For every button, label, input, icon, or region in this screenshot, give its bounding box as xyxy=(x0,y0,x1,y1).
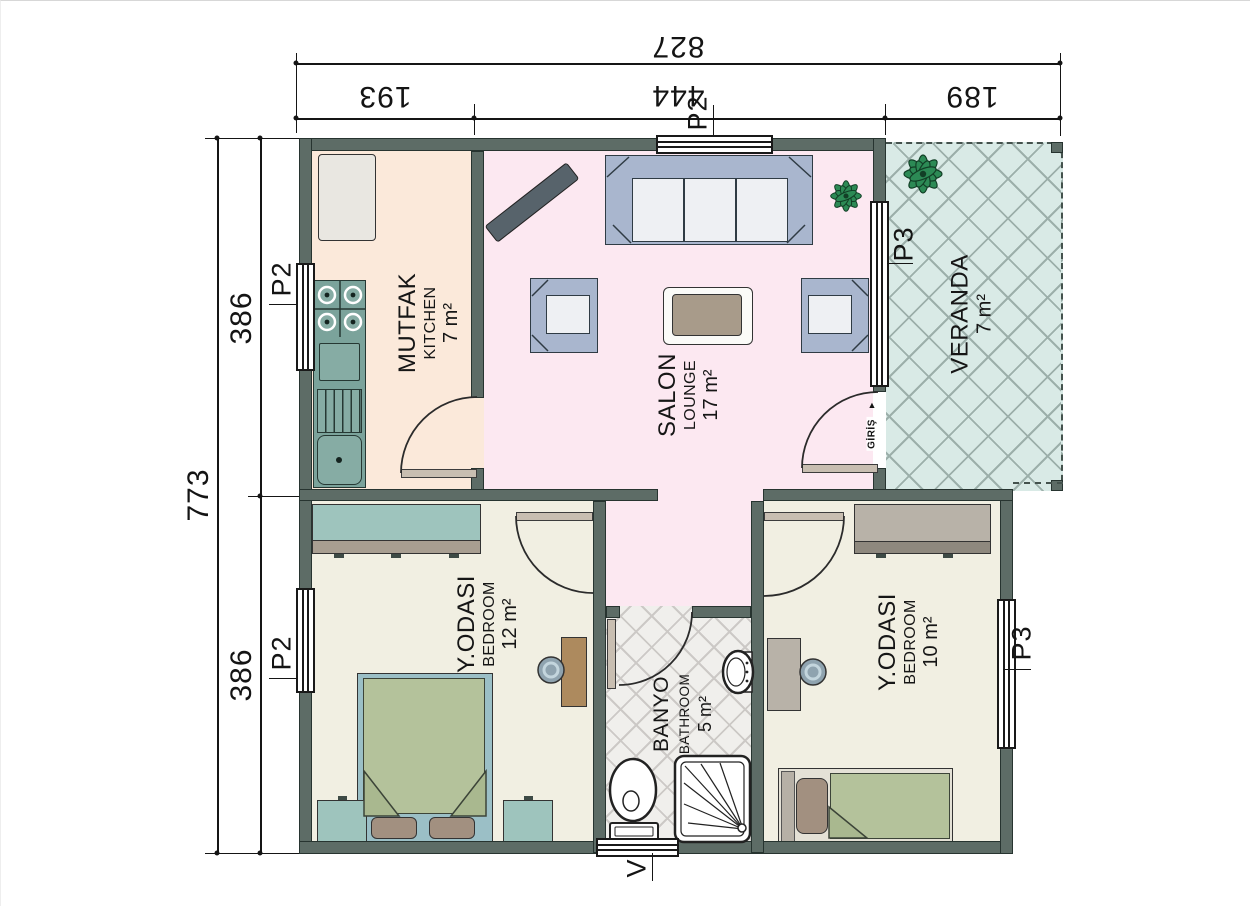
floor-plan-canvas: 827 193 444 189 P2 773 386 386 P2 P2 P3 … xyxy=(0,0,1250,906)
kitchen-area: 7 m² xyxy=(440,273,463,373)
dim-line-left-overall xyxy=(217,138,219,853)
armchair-right xyxy=(801,278,869,353)
dim-dot xyxy=(472,116,477,121)
pillow xyxy=(371,817,417,839)
p2-kitchen-leader xyxy=(269,304,297,305)
bedroom1-door-leaf xyxy=(516,512,593,521)
dim-line-top-segments xyxy=(296,118,1060,120)
wardrobe-foot xyxy=(334,554,344,558)
label-p2-kitchen: P2 xyxy=(267,261,298,296)
dim-total-height: 773 xyxy=(182,468,216,521)
sofa-cushion xyxy=(632,178,684,242)
bedroom2-label: Y.ODASI BEDROOM 10 m² xyxy=(875,593,943,691)
hallway-floor xyxy=(588,489,751,619)
dim-seg-386-top: 386 xyxy=(225,291,259,344)
kitchen-name-en: KITCHEN xyxy=(421,273,440,373)
nightstand-knob xyxy=(338,796,347,800)
window-salon-top-p2 xyxy=(656,135,773,154)
p2-bedroom1-leader xyxy=(269,678,297,679)
wardrobe-bedroom1 xyxy=(312,504,481,554)
window-veranda-p3 xyxy=(870,201,889,387)
dim-seg-193: 193 xyxy=(358,79,411,113)
kitchen-sink xyxy=(317,435,362,485)
pillow xyxy=(796,778,828,834)
window-vent-v xyxy=(596,838,679,857)
dim-dot xyxy=(1058,116,1063,121)
bedroom2-name-en: BEDROOM xyxy=(901,593,920,691)
coffee-table-top xyxy=(672,294,742,336)
coffee-table xyxy=(663,287,753,345)
duvet xyxy=(830,773,950,839)
kitchen-label: MUTFAK KITCHEN 7 m² xyxy=(395,273,463,373)
window-kitchen-p2 xyxy=(296,263,315,371)
wall-kitchen-salon xyxy=(471,151,484,398)
dim-dot xyxy=(215,851,220,856)
label-p3-veranda: P3 xyxy=(889,226,920,261)
wall-mid-west xyxy=(299,489,658,501)
label-p3-bedroom2: P3 xyxy=(1007,625,1038,660)
dim-tick xyxy=(248,496,299,497)
bathroom-name-en: BATHROOM xyxy=(675,674,694,754)
bedroom1-area: 12 m² xyxy=(499,575,522,673)
counter-worktop xyxy=(319,343,360,381)
salon-label: SALON LOUNGE 17 m² xyxy=(655,353,723,437)
entrance-arrow-icon: ▲ xyxy=(868,400,877,410)
label-vent-v: V xyxy=(622,858,653,877)
dim-seg-189: 189 xyxy=(945,79,998,113)
duvet xyxy=(363,678,485,814)
bedroom1-name-en: BEDROOM xyxy=(480,575,499,673)
nightstand-right xyxy=(503,800,553,843)
desk-bedroom1 xyxy=(561,637,587,707)
veranda-area: 7 m² xyxy=(974,254,997,374)
armchair-left xyxy=(530,278,598,353)
entrance-door-leaf xyxy=(802,464,878,473)
dim-total-width: 827 xyxy=(651,29,704,63)
veranda-name: VERANDA xyxy=(948,254,974,374)
dim-dot xyxy=(258,494,263,499)
dim-dot xyxy=(1058,61,1063,66)
wardrobe-bedroom2 xyxy=(854,504,991,554)
wall-bathroom-east xyxy=(751,501,764,853)
wardrobe-foot xyxy=(943,554,953,558)
wardrobe-foot xyxy=(876,554,886,558)
label-p2-top: P2 xyxy=(683,95,714,130)
window-bedroom2-p3 xyxy=(997,599,1016,749)
dim-dot xyxy=(294,116,299,121)
bed-headboard xyxy=(781,771,795,842)
salon-name: SALON xyxy=(655,353,681,437)
wall-bathroom-west xyxy=(593,501,606,853)
wall-bathroom-north-west xyxy=(606,606,620,618)
bathroom-name: BANYO xyxy=(649,674,675,754)
bedroom2-area: 10 m² xyxy=(920,593,943,691)
bathroom-area: 5 m² xyxy=(694,674,717,754)
dim-dot xyxy=(258,851,263,856)
drainboard xyxy=(317,389,362,433)
dim-dot xyxy=(258,136,263,141)
desk-bedroom2 xyxy=(767,638,801,711)
kitchen-name: MUTFAK xyxy=(395,273,421,373)
label-p2-bedroom1: P2 xyxy=(267,635,298,670)
nightstand-knob xyxy=(524,796,533,800)
bathroom-label: BANYO BATHROOM 5 m² xyxy=(649,674,717,754)
p3-bedroom2-leader xyxy=(1003,669,1031,670)
salon-area: 17 m² xyxy=(700,353,723,437)
bathroom-door-leaf xyxy=(607,619,616,689)
bedroom1-name: Y.ODASI xyxy=(454,575,480,673)
pillow xyxy=(429,817,475,839)
salon-name-en: LOUNGE xyxy=(681,353,700,437)
fridge xyxy=(318,154,376,241)
dim-seg-386-bottom: 386 xyxy=(225,648,259,701)
veranda-post-top xyxy=(1051,142,1063,153)
veranda-dashed-edge xyxy=(1013,482,1063,484)
sofa xyxy=(605,155,813,245)
entrance-label: GİRİŞ xyxy=(867,417,878,451)
wall-top xyxy=(299,138,886,151)
dim-dot xyxy=(215,136,220,141)
bedroom2-name: Y.ODASI xyxy=(875,593,901,691)
sofa-cushion xyxy=(736,178,788,242)
dim-dot xyxy=(883,116,888,121)
p3-veranda-leader xyxy=(887,263,913,264)
dim-line-top-overall xyxy=(296,63,1060,65)
bedroom1-label: Y.ODASI BEDROOM 12 m² xyxy=(454,575,522,673)
double-bed xyxy=(357,673,493,844)
wardrobe-foot xyxy=(391,554,401,558)
wardrobe-foot xyxy=(449,554,459,558)
armchair-cushion xyxy=(808,295,852,334)
armchair-cushion xyxy=(546,295,590,334)
bedroom2-door-leaf xyxy=(764,512,844,521)
wall-bathroom-north-east xyxy=(692,606,751,618)
wall-mid-east xyxy=(763,489,1013,501)
single-bed xyxy=(778,768,953,844)
dim-dot xyxy=(294,61,299,66)
veranda-label: VERANDA 7 m² xyxy=(948,254,997,374)
sofa-cushion xyxy=(684,178,736,242)
kitchen-door-leaf xyxy=(401,469,477,478)
nightstand-left xyxy=(317,800,367,843)
window-bedroom1-p2 xyxy=(296,588,315,693)
